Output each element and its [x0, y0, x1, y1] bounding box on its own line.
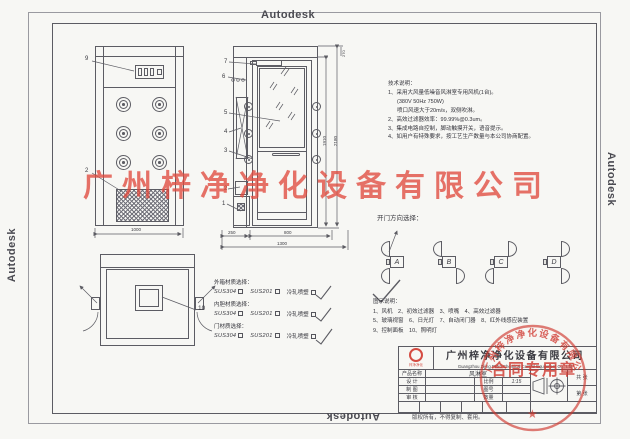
material-checkbox [275, 311, 280, 316]
material-selection: 外箱材质选择： SUS304 SUS201 冷轧喷塑 内胆材质选择： SUS30… [214, 278, 349, 344]
legend-title: 图示说明： [373, 298, 588, 308]
door-option-c: C [494, 256, 508, 268]
drawing-sheet: Autodesk Autodesk Autodesk Autodesk 9 2 … [0, 0, 630, 439]
material-checkbox [275, 333, 280, 338]
company-logo-text: 梓净净化 [409, 363, 423, 368]
material-option-row: SUS304 SUS201 冷轧喷塑 [214, 288, 349, 296]
material-option-row: SUS304 SUS201 冷轧喷塑 [214, 332, 349, 340]
material-checkbox [238, 333, 243, 338]
materials-group-label: 外箱材质选择： [214, 278, 349, 286]
door-option-b: B [442, 256, 456, 268]
material-checkbox [238, 289, 243, 294]
seal-banner: 合同专用章 [491, 356, 576, 380]
material-checkbox [311, 312, 316, 317]
notes-line: 喷口风速大于20m/s，双侧吹淋。 [388, 107, 593, 116]
material-checkbox [238, 311, 243, 316]
company-logo-icon [409, 348, 423, 362]
material-option: 冷轧喷塑 [287, 332, 316, 340]
door-option-a: A [390, 256, 404, 268]
door-direction-title: 开门方向选择： [377, 216, 423, 223]
materials-group-label: 门材质选择： [214, 322, 349, 330]
material-checkbox [275, 289, 280, 294]
material-option: 冷轧喷塑 [287, 288, 316, 296]
technical-notes: 技术说明： 1、采用大风量低噪音风淋室专用风机(1台)。 (380V 50Hz … [388, 80, 593, 142]
material-option: SUS304 [214, 289, 243, 295]
door-option-d: D [547, 256, 561, 268]
door-option-letter: A [395, 259, 400, 266]
door-option-letter: D [551, 259, 556, 266]
notes-title: 技术说明： [388, 80, 593, 89]
notes-line: 1、采用大风量低噪音风淋室专用风机(1台)。 [388, 89, 593, 98]
material-option: SUS304 [214, 311, 243, 317]
material-option: SUS201 [250, 311, 279, 317]
material-checkbox [311, 290, 316, 295]
door-option-letter: C [498, 259, 503, 266]
notes-line: 3、集成电路自控制，脚动触摸开关，语音提示。 [388, 125, 593, 134]
notes-line: 4、如用户有特殊要求，按工艺生产数量与本公司协商配置。 [388, 133, 593, 142]
notes-line: 2、高效过滤器效率：99.99%@0.3um。 [388, 116, 593, 125]
door-option-letter: B [447, 259, 452, 266]
material-checkbox [311, 334, 316, 339]
seal-star: ★ [527, 407, 538, 421]
watermark: 广州梓净净化设备有限公司 [83, 161, 551, 205]
materials-group-label: 内胆材质选择： [214, 300, 349, 308]
material-option-row: SUS304 SUS201 冷轧喷塑 [214, 310, 349, 318]
material-option: SUS201 [250, 289, 279, 295]
material-option: 冷轧喷塑 [287, 310, 316, 318]
notes-line: (380V 50Hz 750W) [388, 98, 593, 107]
material-option: SUS201 [250, 333, 279, 339]
material-option: SUS304 [214, 333, 243, 339]
